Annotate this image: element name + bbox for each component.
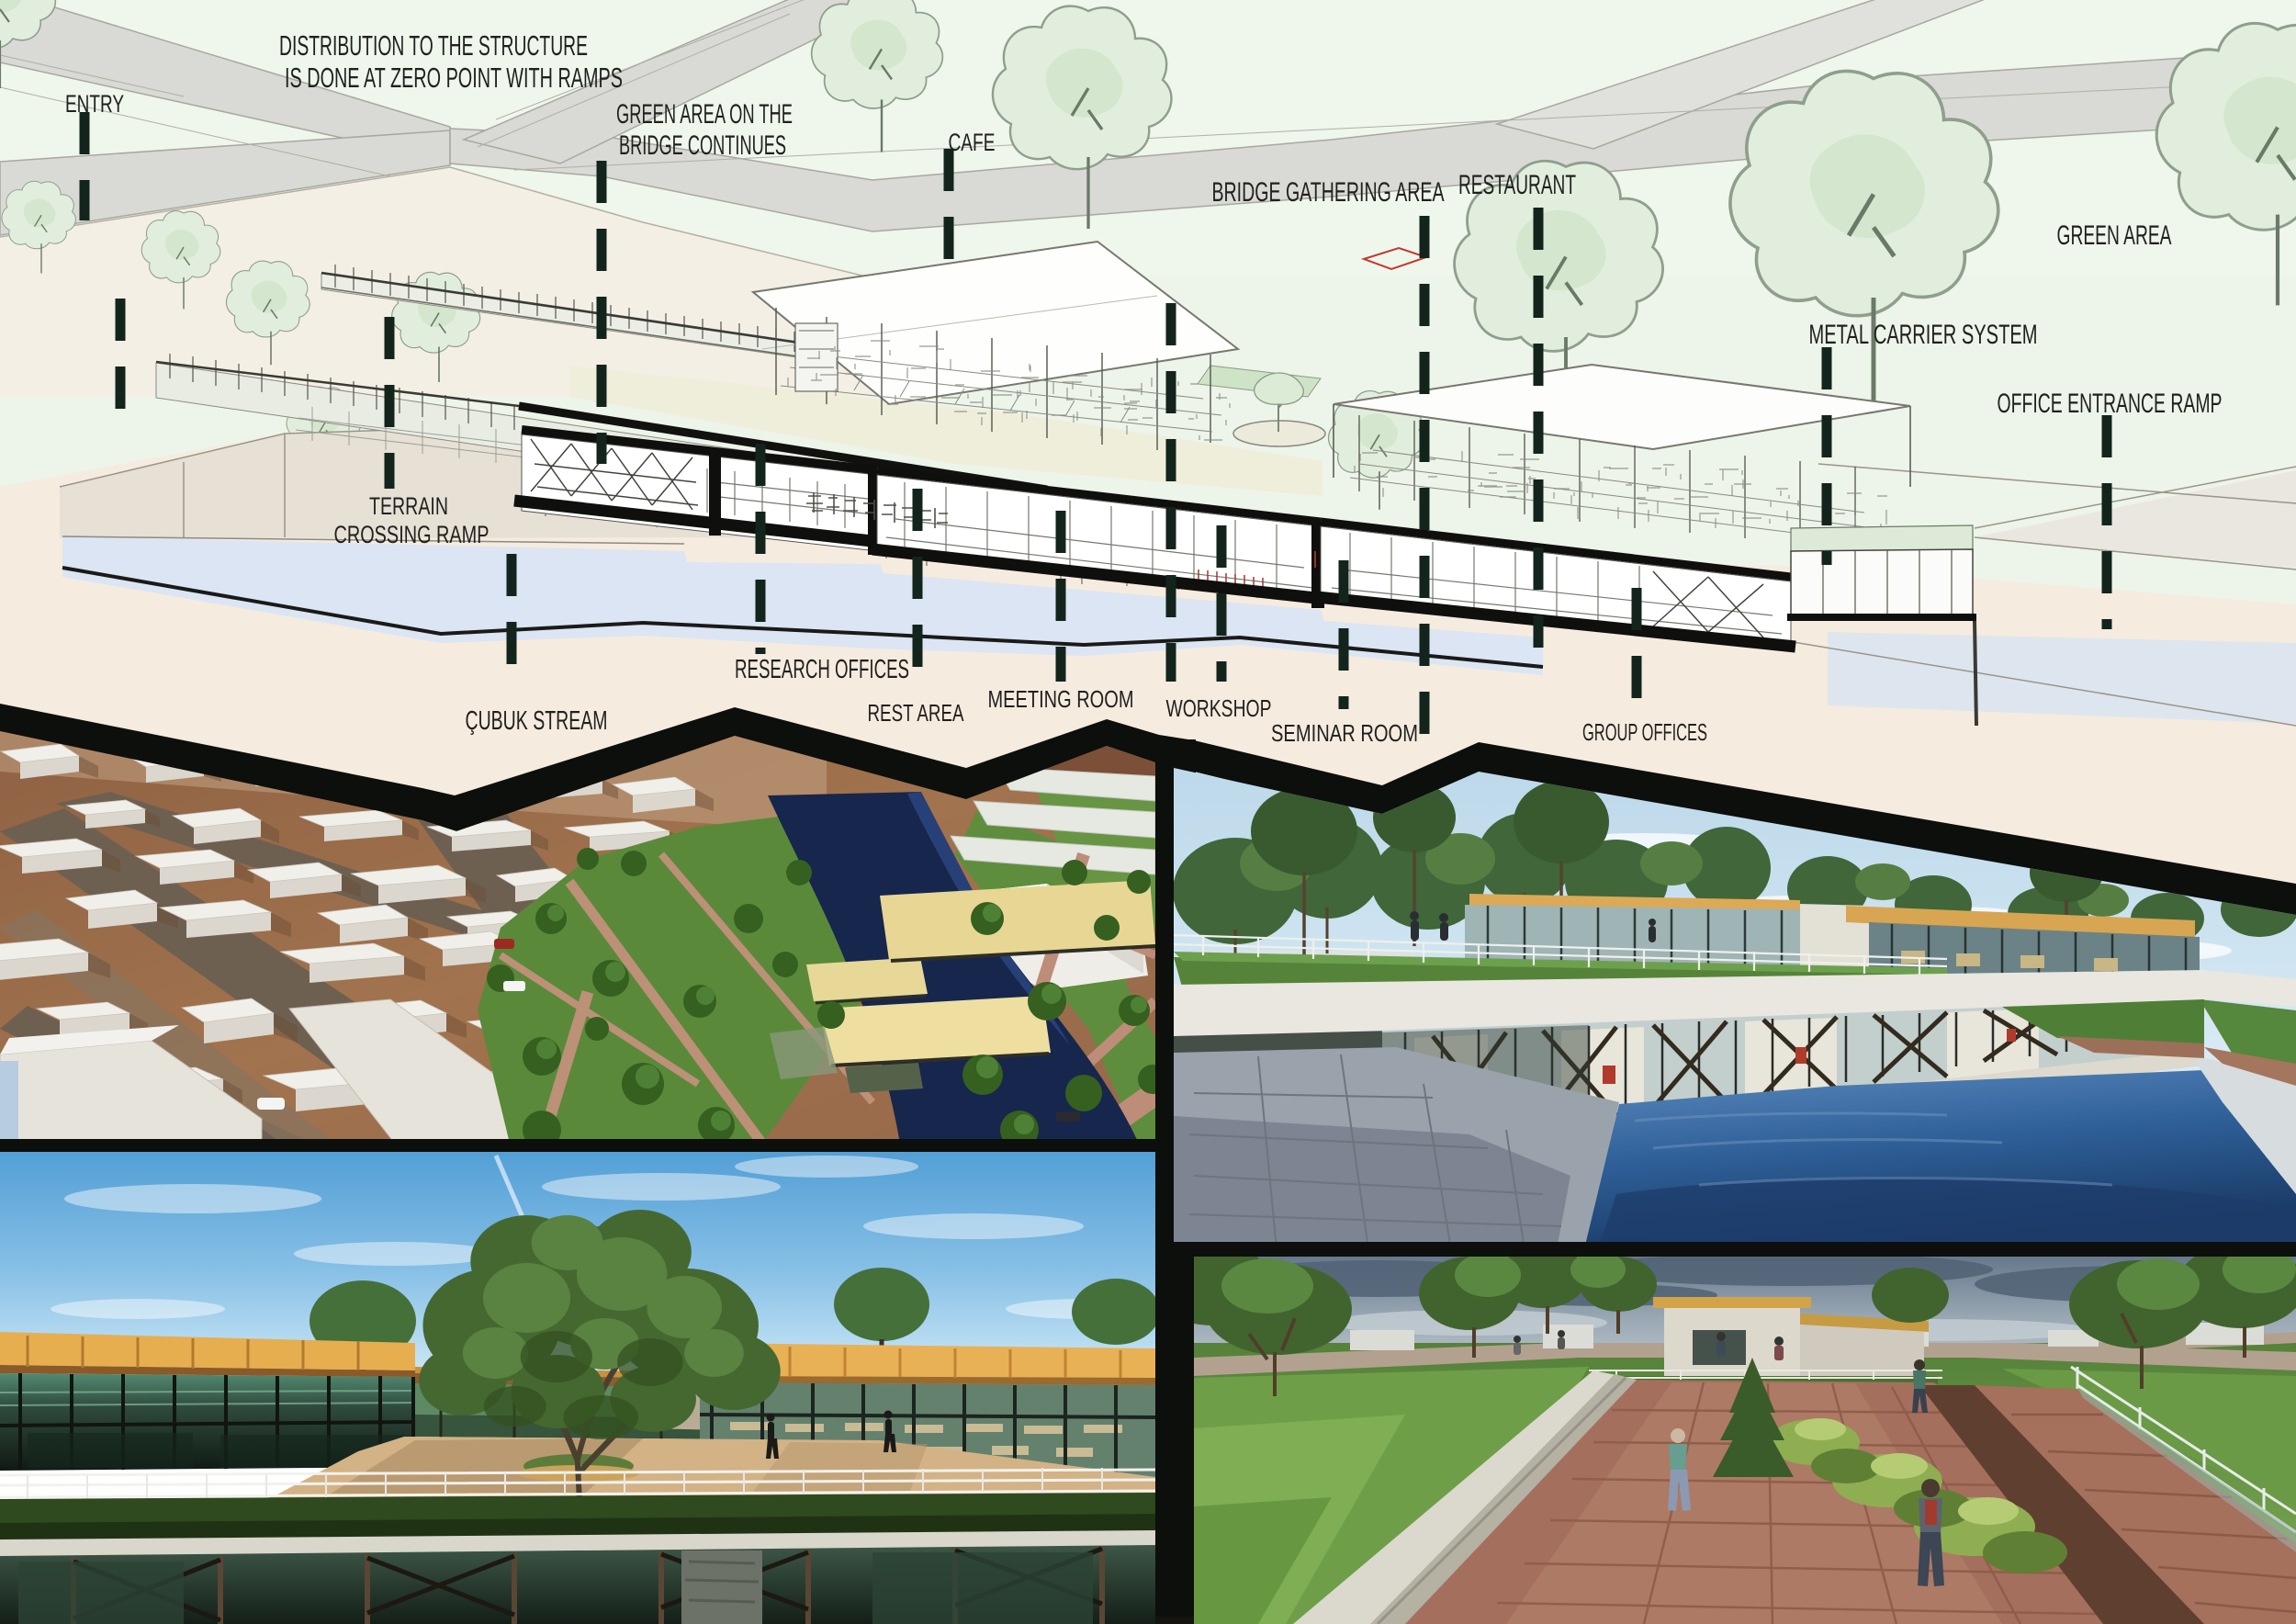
svg-text:CROSSING RAMP: CROSSING RAMP (334, 521, 490, 548)
svg-text:IS DONE AT ZERO POINT WITH RAM: IS DONE AT ZERO POINT WITH RAMPS (285, 62, 623, 94)
svg-text:GREEN AREA: GREEN AREA (2057, 220, 2172, 251)
svg-text:MEETING ROOM: MEETING ROOM (988, 685, 1134, 713)
svg-text:RESTAURANT: RESTAURANT (1458, 170, 1576, 200)
svg-text:BRIDGE GATHERING AREA: BRIDGE GATHERING AREA (1212, 177, 1445, 208)
svg-text:GREEN AREA ON THE: GREEN AREA ON THE (616, 99, 793, 130)
svg-text:GROUP OFFICES: GROUP OFFICES (1582, 718, 1707, 746)
svg-text:TERRAIN: TERRAIN (369, 492, 448, 520)
svg-text:SEMINAR ROOM: SEMINAR ROOM (1271, 719, 1418, 747)
svg-text:WORKSHOP: WORKSHOP (1166, 694, 1272, 722)
svg-text:CAFE: CAFE (949, 129, 996, 156)
svg-text:BRIDGE CONTINUES: BRIDGE CONTINUES (619, 130, 786, 161)
svg-text:REST AREA: REST AREA (868, 699, 964, 727)
svg-text:ÇUBUK STREAM: ÇUBUK STREAM (466, 706, 608, 736)
svg-text:RESEARCH OFFICES: RESEARCH OFFICES (735, 655, 909, 684)
svg-text:OFFICE ENTRANCE RAMP: OFFICE ENTRANCE RAMP (1998, 389, 2223, 419)
svg-text:DISTRIBUTION TO THE STRUCTURE: DISTRIBUTION TO THE STRUCTURE (279, 29, 588, 62)
svg-text:ENTRY: ENTRY (65, 90, 124, 118)
svg-text:METAL CARRIER SYSTEM: METAL CARRIER SYSTEM (1809, 320, 2038, 350)
